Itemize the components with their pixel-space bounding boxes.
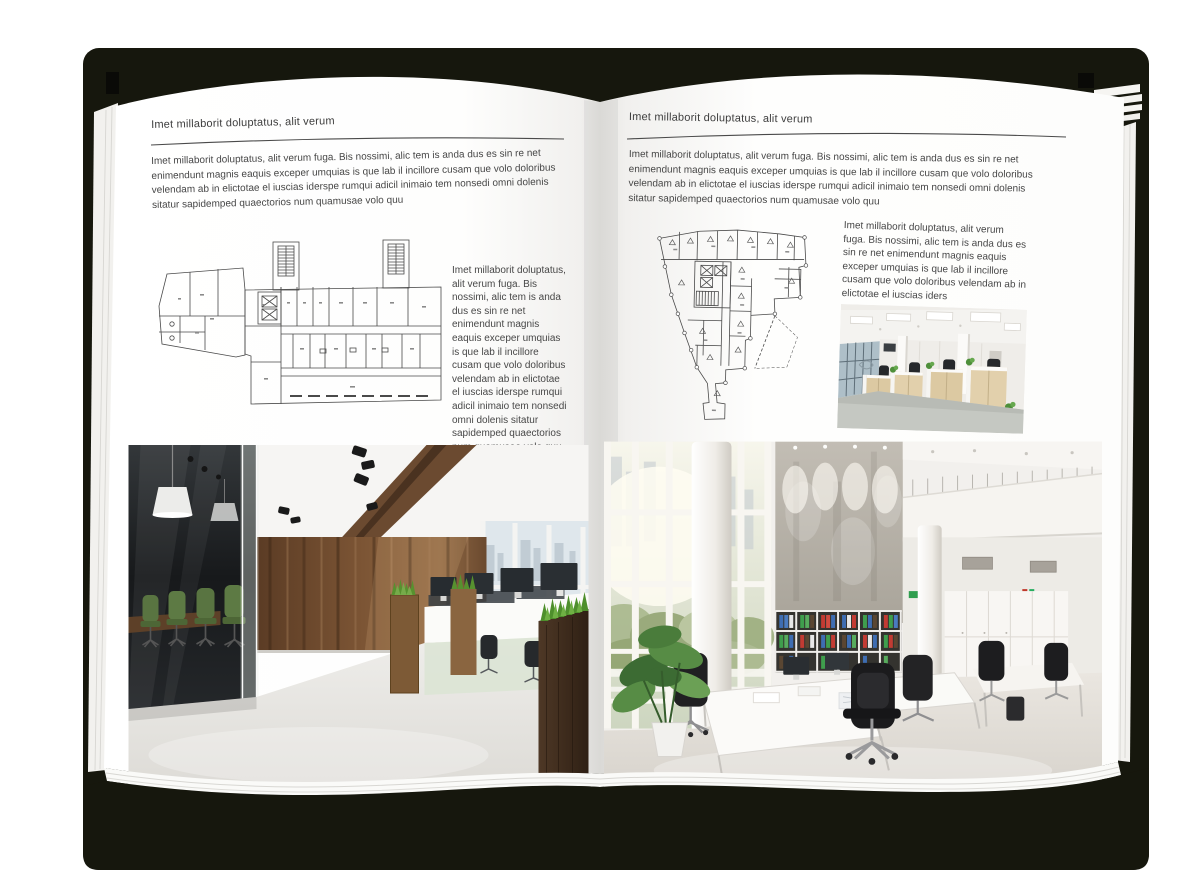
right-interior-photo	[604, 441, 1102, 793]
right-header-rule	[626, 129, 1070, 143]
right-caption-block: Imet millaborit doluptatus, alit verum f…	[841, 219, 1027, 306]
left-caption-column: Imet millaborit doluptatus, alit verum f…	[452, 264, 570, 454]
left-floor-plan-drawing	[150, 228, 450, 418]
left-interior-photo	[127, 445, 590, 795]
left-intro-paragraph: Imet millaborit doluptatus, alit verum f…	[151, 146, 576, 213]
magazine-mockup-scene: { "document": { "type": "open magazine s…	[0, 0, 1200, 891]
left-header-rule	[150, 134, 568, 148]
right-small-office-photo	[837, 304, 1027, 434]
right-intro-paragraph: Imet millaborit doluptatus, alit verum f…	[628, 148, 1049, 212]
right-floor-plan-drawing	[636, 214, 840, 430]
waste-bin	[1006, 697, 1024, 721]
